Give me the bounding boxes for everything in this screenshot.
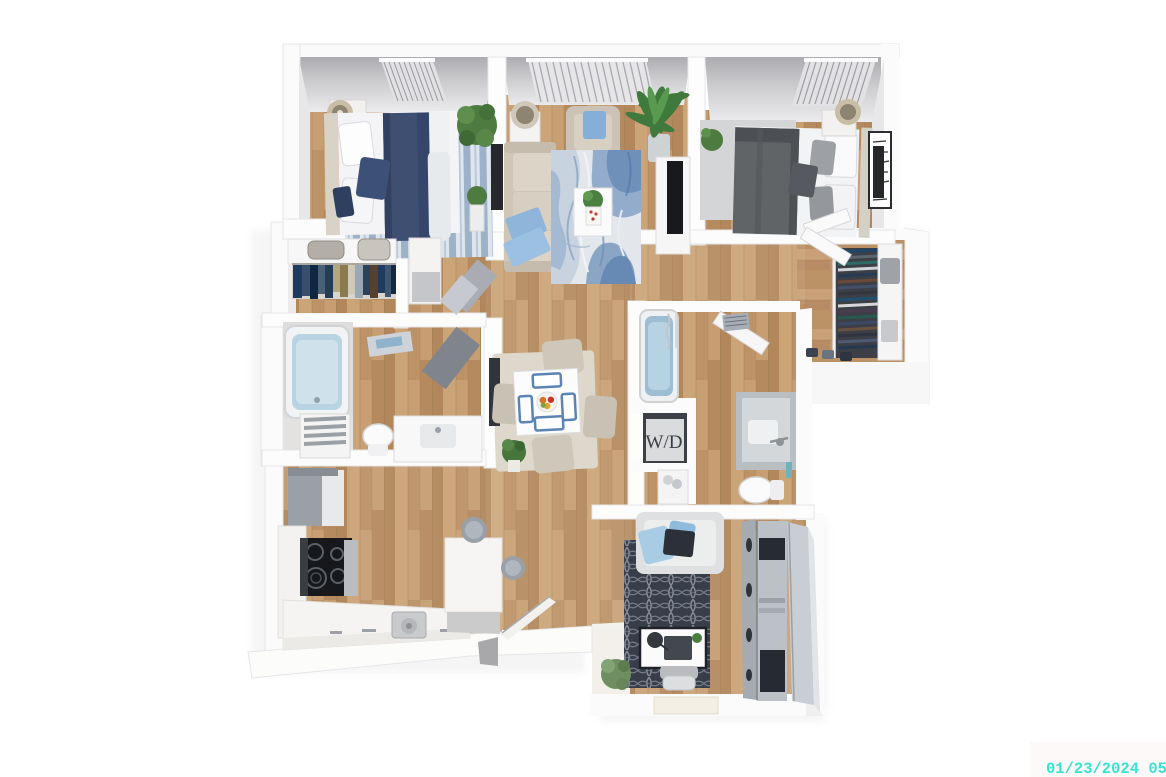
svg-text:W/D: W/D bbox=[646, 432, 683, 453]
svg-text:01/23/2024 05:2: 01/23/2024 05:2 bbox=[1046, 760, 1166, 777]
